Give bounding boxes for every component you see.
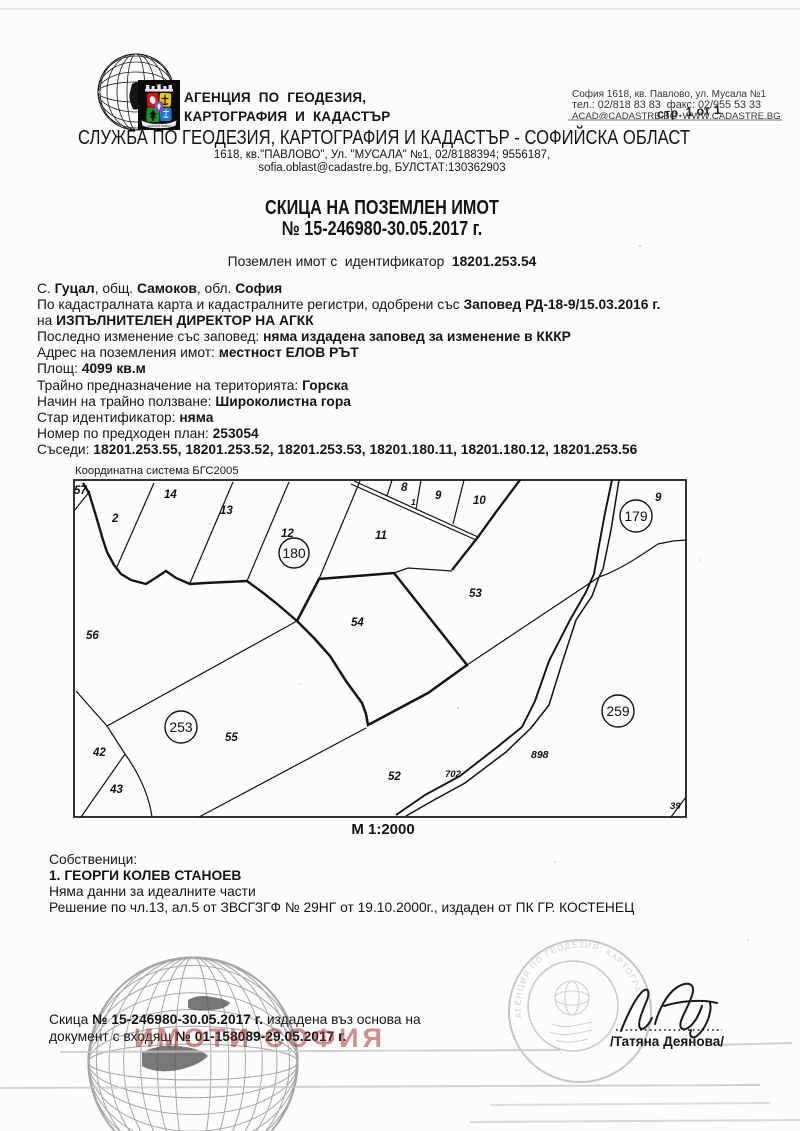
svg-text:54: 54: [351, 617, 364, 629]
svg-text:2: 2: [111, 513, 119, 525]
svg-text:13: 13: [220, 505, 233, 517]
svg-text:52: 52: [388, 771, 401, 783]
svg-text:8: 8: [401, 482, 408, 494]
svg-text:702: 702: [445, 769, 462, 780]
svg-text:14: 14: [164, 489, 177, 501]
svg-text:9: 9: [435, 490, 442, 502]
svg-text:180: 180: [282, 545, 306, 561]
svg-text:12: 12: [281, 528, 294, 540]
svg-text:42: 42: [92, 747, 106, 759]
svg-text:259: 259: [606, 703, 630, 719]
svg-text:10: 10: [473, 495, 486, 507]
svg-text:9: 9: [655, 492, 662, 504]
svg-text:43: 43: [109, 784, 123, 796]
svg-text:56: 56: [86, 630, 99, 642]
svg-text:898: 898: [531, 749, 549, 761]
svg-text:САМОКОВ ГЕРБЪТ: САМОКОВ ГЕРБЪТ: [147, 124, 171, 128]
svg-text:57: 57: [74, 485, 87, 497]
svg-text:39: 39: [670, 801, 681, 812]
svg-text:11: 11: [375, 530, 387, 542]
svg-text:55: 55: [225, 732, 238, 744]
svg-text:179: 179: [624, 508, 648, 524]
svg-text:53: 53: [469, 588, 482, 600]
svg-text:1: 1: [411, 497, 416, 507]
svg-text:253: 253: [169, 719, 193, 735]
